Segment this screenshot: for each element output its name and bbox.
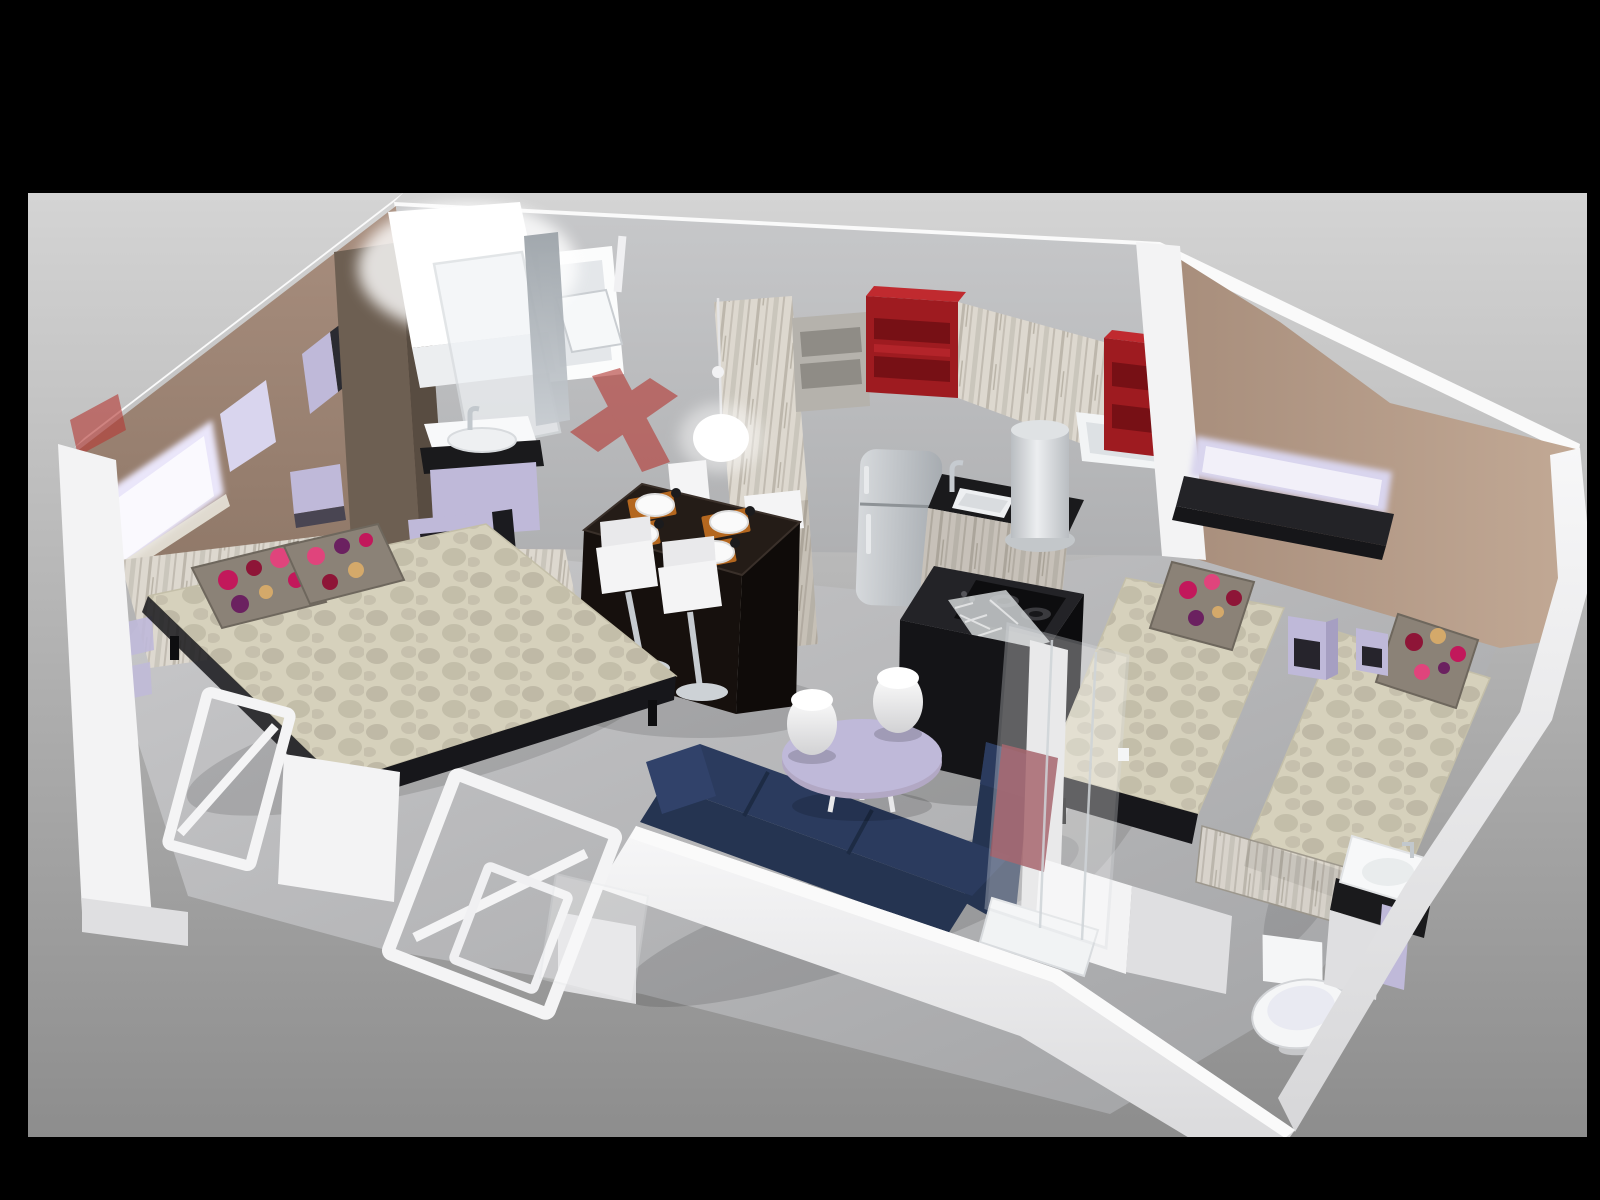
stool-glow-top-2 [877,667,919,689]
stool2-seat [658,560,722,614]
floorplan-render-svg [0,0,1600,1200]
bedside-shelf [290,464,344,514]
stool2-base [676,683,728,701]
frame-right [1587,0,1600,1200]
nightstand-2 [1356,628,1388,676]
front-wall-segment-2 [278,754,400,902]
refrigerator-handle-top [864,466,869,494]
water-heater-body [1011,430,1069,538]
frame-bottom [0,1137,1600,1200]
frame-top [0,0,1600,193]
refrigerator-handle-bottom [866,514,871,554]
pendant-shade [693,414,749,462]
frame-left [0,0,28,1200]
nightstand-1 [1288,616,1338,680]
water-heater-top [1011,420,1069,440]
gray-cubby-shelf1 [800,327,862,357]
glass-shower-cabin [986,624,1129,948]
hob-knob-1 [961,591,967,597]
glass-door-leaf [540,874,648,1002]
burner-2-center [1029,611,1043,617]
pendant-cap [712,366,724,378]
vanity1-basin [448,428,516,452]
cup-1 [671,488,681,498]
egg-stool-2 [873,667,923,742]
nightstand2-opening [1362,646,1382,668]
cup-4 [730,538,740,548]
gray-cubby-shelf2 [800,359,862,389]
bed1-leg3 [648,700,657,726]
bed1-leg1 [170,636,179,660]
nightstand1-opening [1294,638,1320,670]
cup-3 [654,519,664,529]
nightstand1-side [1326,618,1338,680]
vanity2-bowl [1362,858,1414,886]
stool1-seat [596,540,658,594]
shower-glass [986,624,1128,948]
egg-stool-1 [787,689,837,764]
plate-1 [636,494,674,516]
stool-glow-top-1 [791,689,833,711]
shower-handle [1118,748,1129,761]
plate-2 [710,511,748,533]
cup-2 [745,506,755,516]
rendered-floorplan-image [0,0,1600,1200]
